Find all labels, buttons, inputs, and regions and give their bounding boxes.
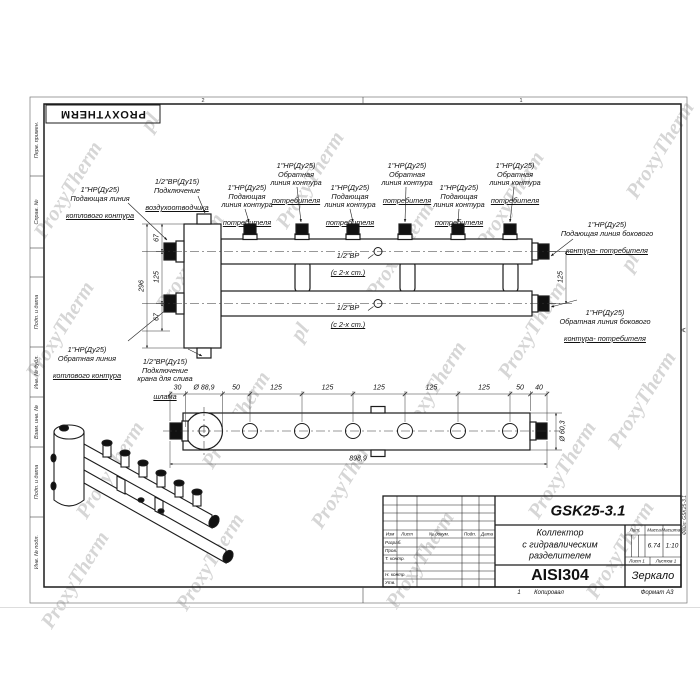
label-text: 1/2"ВР (331, 304, 365, 313)
label-text: 1"НР(Ду25) Обратная линия контура (381, 162, 432, 188)
label-shelf: потребителя (489, 197, 540, 206)
label-shelf: потребителя (433, 219, 484, 228)
margin-label-vzam-inv: Взам. инв. № (34, 405, 40, 439)
label-text: 1/2"ВР(Ду15) Подключение (145, 178, 208, 196)
scale-header: Масштаб (661, 528, 682, 533)
label-drain: 1/2"ВР(Ду15) Подключение крана для слива… (137, 349, 192, 410)
iso-separator (54, 432, 84, 506)
col-header-list: Лист (401, 532, 413, 537)
title-designation: GSK25-3.1 (550, 503, 625, 520)
label-shelf: контура- потребителя (559, 335, 650, 344)
col-header-podp: Подп. (464, 532, 476, 537)
label-text: 1"НР(Ду25) Подающая линия контура (324, 184, 375, 210)
label-shelf: (с 2-х ст.) (331, 321, 365, 330)
drain-boss (197, 348, 211, 358)
dim-50-left: 50 (232, 385, 240, 392)
label-shelf: (с 2-х ст.) (331, 269, 365, 278)
label-text: 1"НР(Ду25) Подающая линия бокового (561, 221, 653, 239)
label-shelf: контура- потребителя (561, 247, 653, 256)
label-consumer-supply-1: 1"НР(Ду25) Подающая линия контура потреб… (221, 175, 272, 236)
label-shelf: шлама (137, 393, 192, 402)
zone-number-1: 1 (519, 98, 522, 104)
title-material: AISI304 (531, 567, 589, 585)
label-text: 1"НР(Ду25) Обратная линия (53, 346, 121, 364)
label-consumer-return-1: 1"НР(Ду25) Обратная линия контура потреб… (270, 153, 321, 214)
label-shelf: потребителя (324, 219, 375, 228)
hydraulic-separator (184, 224, 221, 348)
label-text: 1"НР(Ду25) Обратная линия контура (489, 162, 540, 188)
label-text: 1"НР(Ду25) Подающая линия контура (433, 184, 484, 210)
label-text: 1/2"ВР(Ду15) Подключение крана для слива (137, 358, 192, 384)
margin-label-inv-podl: Инв. № подл. (34, 535, 40, 569)
mass-value: 6.74 (648, 543, 661, 550)
label-consumer-return-2: 1"НР(Ду25) Обратная линия контура потреб… (381, 153, 432, 214)
dim-296: 296 (139, 280, 146, 292)
label-shelf: котлового контура (53, 372, 121, 381)
dim-overall-898-9: 898,9 (349, 456, 367, 463)
label-boiler-supply: 1"НР(Ду25) Подающая линия котлового конт… (66, 177, 134, 230)
row-label-razrab: Разраб. (385, 540, 402, 545)
format-note: Формат А3 (641, 590, 674, 596)
dim-30: 30 (174, 385, 182, 392)
col-header-izm: Изм (386, 532, 395, 537)
dim-125-e: 125 (478, 385, 490, 392)
margin-label-podp-data-2: Подп. и дата (34, 465, 40, 499)
dim-125-c: 125 (373, 385, 385, 392)
label-text: 1/2"ВР (331, 252, 365, 261)
dim-67-top: 67 (154, 234, 161, 242)
col-header-data: Дата (481, 532, 493, 537)
dim-125-right: 125 (558, 271, 565, 283)
col-header-dokum: № докум. (429, 532, 449, 537)
dim-dia-88-9: Ø 88,9 (193, 385, 214, 392)
sheets-total: Листов 1 (656, 559, 677, 564)
label-consumer-supply-3: 1"НР(Ду25) Подающая линия контура потреб… (433, 175, 484, 236)
label-shelf: потребителя (221, 219, 272, 228)
margin-label-inv-dubl: Инв. № дубл. (34, 355, 40, 389)
dim-67-bot: 67 (154, 313, 161, 321)
dim-50-right: 50 (516, 385, 524, 392)
margin-label-sprav: Справ. № (34, 200, 40, 225)
row-label-utv: Утв. (385, 580, 395, 585)
label-air-vent: 1/2"ВР(Ду15) Подключение воздухоотводчик… (145, 169, 208, 222)
zone-number-2: 2 (201, 98, 204, 104)
title-name: Коллектор с гидравлическим разделителем (522, 527, 597, 562)
dim-125-a: 125 (270, 385, 282, 392)
dim-125-d: 125 (426, 385, 438, 392)
label-text: 1"НР(Ду25) Подающая линия (66, 186, 134, 204)
label-shelf: котлового контура (66, 212, 134, 221)
label-text: 1"НР(Ду25) Обратная линия контура (270, 162, 321, 188)
dim-125-b: 125 (322, 385, 334, 392)
row-label-prov: Пров. (385, 548, 397, 553)
dim-40: 40 (535, 385, 543, 392)
row-label-tkontr: Т. контр. (385, 556, 405, 561)
lit-header: Лит. (630, 528, 641, 533)
mass-header: Масса (647, 528, 661, 533)
label-shelf: потребителя (270, 197, 321, 206)
zone-letter: А (681, 328, 688, 333)
dim-125-mid: 125 (154, 271, 161, 283)
copy-number: 1 (517, 590, 520, 596)
label-tap-upper: 1/2"ВР (с 2-х ст.) (331, 243, 365, 287)
dim-dia-60-3: Ø 60,3 (560, 420, 567, 441)
label-tap-lower: 1/2"ВР (с 2-х ст.) (331, 295, 365, 339)
title-mirror: Зеркало (632, 570, 675, 582)
copied-note: Копировал (534, 590, 564, 596)
manifold-body-top (183, 413, 530, 450)
sheet-number: Лист 1 (629, 559, 645, 564)
label-text: 1"НР(Ду25) Подающая линия контура (221, 184, 272, 210)
label-boiler-return: 1"НР(Ду25) Обратная линия котлового конт… (53, 337, 121, 390)
margin-label-perv-primen: Перв. примен. (34, 122, 40, 159)
label-shelf: воздухоотводчика (145, 204, 208, 213)
proxytherm-logo: PROXYTHERM (60, 108, 146, 120)
label-side-return: 1"НР(Ду25) Обратная линия бокового конту… (559, 300, 650, 353)
label-consumer-return-3: 1"НР(Ду25) Обратная линия контура потреб… (489, 153, 540, 214)
scale-value: 1:10 (666, 543, 679, 550)
file-reference: Файл: GSK25-3.1 (682, 495, 688, 535)
label-shelf: потребителя (381, 197, 432, 206)
label-consumer-supply-2: 1"НР(Ду25) Подающая линия контура потреб… (324, 175, 375, 236)
margin-label-podp-data-1: Подп. и дата (34, 295, 40, 329)
label-side-supply: 1"НР(Ду25) Подающая линия бокового конту… (561, 212, 653, 265)
row-label-nkontr: Н. контр. (385, 572, 406, 577)
drawing-sheet: ProxyThermplProxyThermProxyThermProxyThe… (0, 0, 700, 700)
label-text: 1"НР(Ду25) Обратная линия бокового (559, 309, 650, 327)
